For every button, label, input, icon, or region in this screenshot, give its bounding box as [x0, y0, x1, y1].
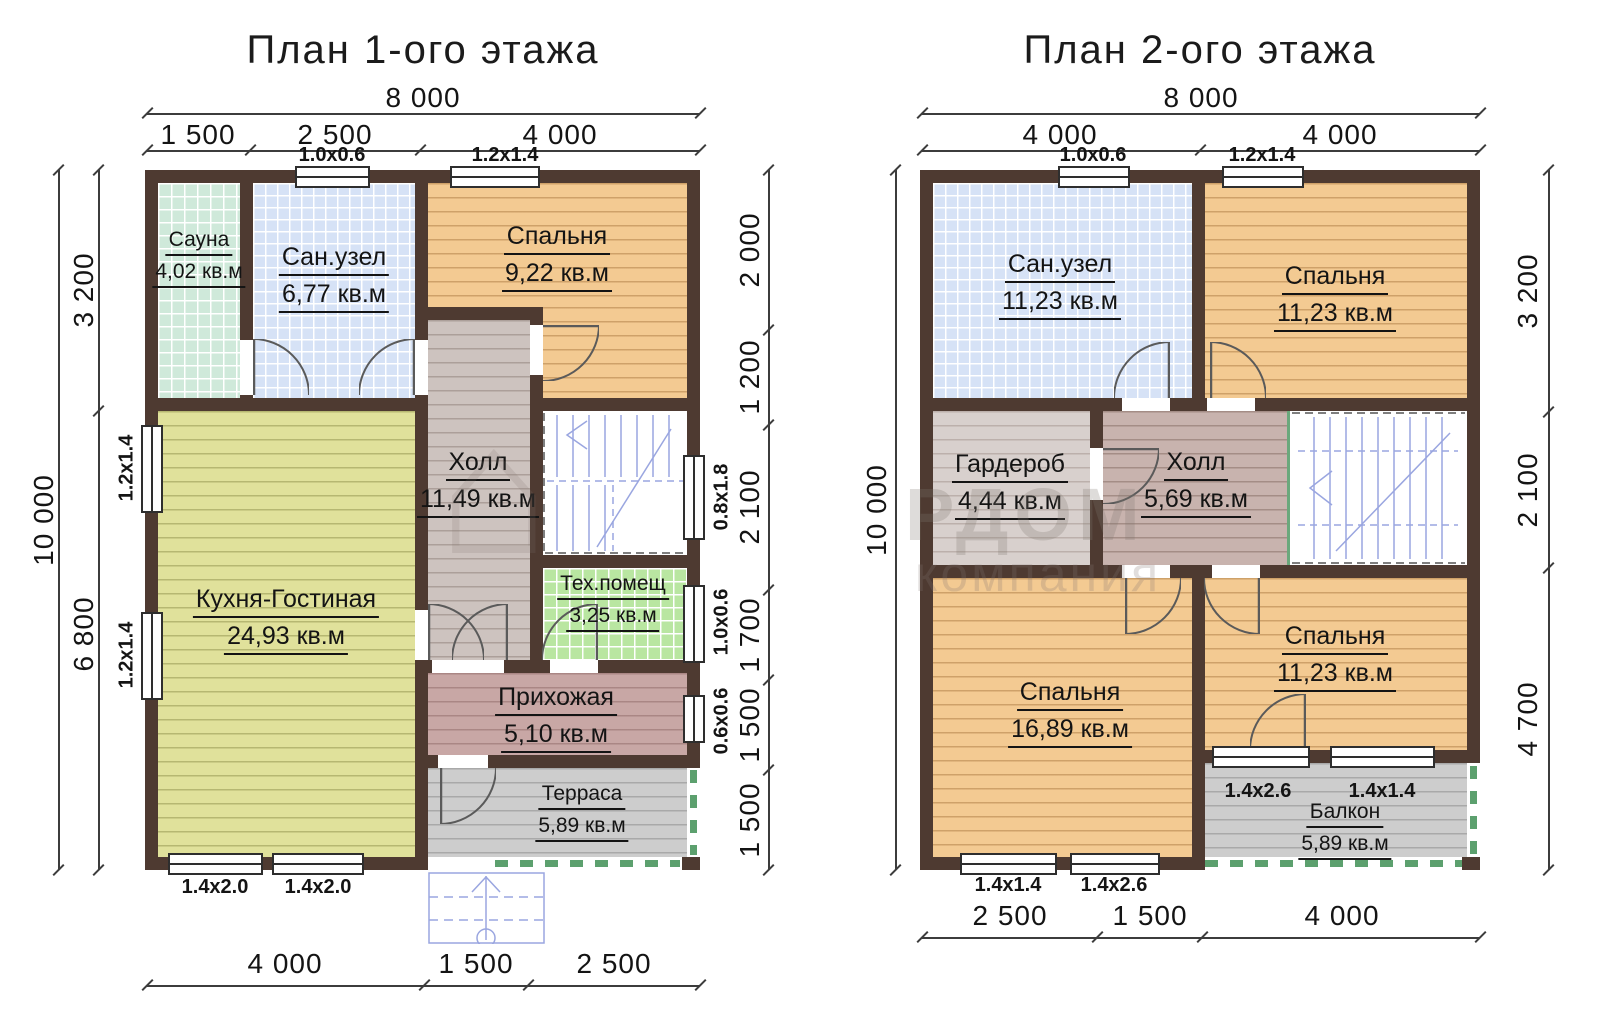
window-size-label: 1.4x2.6	[1081, 874, 1148, 897]
window-size-label: 1.2x1.4	[1229, 144, 1296, 167]
window-size-label: 1.4x2.6	[1225, 780, 1292, 803]
dim-label: 1 700	[734, 597, 766, 672]
window-p1-bottom-1	[168, 853, 263, 875]
plan1-title: План 1-ого этажа	[246, 28, 599, 73]
room-label-bedroom-3: Спальня 16,89 кв.м	[1008, 678, 1132, 748]
dim-label: 2 100	[734, 469, 766, 544]
door-opening-bedroom-2	[1207, 398, 1255, 411]
room-area: 5,69 кв.м	[1141, 485, 1251, 518]
dim-label: 8 000	[385, 82, 460, 114]
room-name: Спальня	[1282, 262, 1388, 295]
room-name: Гардероб	[952, 450, 1068, 483]
room-name: Кухня-Гостиная	[193, 585, 379, 618]
window-size-label: 1.2x1.4	[116, 622, 139, 689]
room-name: Сан.узел	[1005, 250, 1115, 283]
dim-label: 2 500	[972, 900, 1047, 932]
porch-steps	[428, 872, 545, 944]
room-label-bedroom-1: Спальня 9,22 кв.м	[502, 222, 612, 292]
room-name: Холл	[446, 448, 511, 481]
dim-line	[895, 170, 897, 870]
dim-label: 1 500	[734, 687, 766, 762]
room-area: 11,23 кв.м	[1274, 659, 1396, 692]
room-name: Спальня	[1017, 678, 1123, 711]
room-label-wardrobe: Гардероб 4,44 кв.м	[952, 450, 1068, 520]
room-label-bedroom-4: Спальня 11,23 кв.м	[1274, 622, 1396, 692]
window-size-label: 1.0x0.6	[711, 589, 734, 656]
window-p2-top-1	[1058, 166, 1130, 188]
room-label-bathroom-2: Сан.узел 11,23 кв.м	[999, 250, 1121, 320]
room-area: 3,25 кв.м	[566, 604, 659, 632]
dim-label: 6 800	[68, 596, 100, 671]
dim-label: 4 000	[1302, 119, 1377, 151]
door-opening-sauna	[240, 340, 253, 395]
room-name: Сан.узел	[279, 243, 389, 276]
dim-line	[1548, 170, 1550, 870]
door-arc-bedroom-3	[1125, 578, 1181, 634]
dim-label: 8 000	[1163, 82, 1238, 114]
window-p2-balcony-1	[1212, 746, 1310, 768]
dim-label: 1 200	[734, 339, 766, 414]
room-label-bathroom-1: Сан.узел 6,77 кв.м	[279, 243, 389, 313]
room-area: 6,77 кв.м	[279, 280, 389, 313]
window-size-label: 1.2x1.4	[472, 144, 539, 167]
room-area: 11,23 кв.м	[999, 287, 1121, 320]
window-p2-bottom-1	[960, 853, 1057, 875]
room-area: 24,93 кв.м	[224, 622, 348, 655]
window-p2-balcony-2	[1330, 746, 1435, 768]
door-opening-tech	[550, 660, 598, 673]
window-size-label: 0.8x1.8	[711, 464, 734, 531]
door-opening-kitchen	[415, 610, 428, 660]
room-label-balcony: Балкон 5,89 кв.м	[1298, 800, 1391, 860]
room-area: 11,23 кв.м	[1274, 299, 1396, 332]
dim-label: 4 000	[1304, 900, 1379, 932]
dim-label: 2 000	[734, 212, 766, 287]
room-label-sauna: Сауна 4,02 кв.м	[152, 228, 245, 288]
room-label-hall-1: Холл 11,49 кв.м	[417, 448, 539, 518]
window-p1-top-2	[450, 166, 540, 188]
window-p1-left-2	[141, 612, 163, 700]
door-opening-bathroom-2	[1122, 398, 1170, 411]
plan2-title: План 2-ого этажа	[1023, 28, 1376, 73]
room-name: Спальня	[504, 222, 610, 255]
window-p1-right-3	[683, 695, 705, 743]
room-name: Спальня	[1282, 622, 1388, 655]
room-floor-sauna	[158, 183, 240, 398]
window-size-label: 0.6x0.6	[711, 688, 734, 755]
room-name: Сауна	[166, 228, 233, 256]
room-name: Балкон	[1307, 800, 1383, 828]
window-size-label: 1.4x1.4	[1349, 780, 1416, 803]
balcony-railing-bottom	[1205, 860, 1462, 867]
door-arc-terrace	[440, 768, 496, 824]
room-area: 16,89 кв.м	[1008, 715, 1132, 748]
room-area: 9,22 кв.м	[502, 259, 612, 292]
window-size-label: 1.4x2.0	[285, 876, 352, 899]
dim-label: 2 500	[576, 948, 651, 980]
window-p2-top-2	[1222, 166, 1304, 188]
dim-label: 1 500	[1112, 900, 1187, 932]
room-label-terrace: Терраса 5,89 кв.м	[535, 782, 628, 842]
dim-label: 4 700	[1512, 681, 1544, 756]
door-opening-hallway-1	[432, 660, 504, 673]
terrace-railing-bottom	[495, 860, 680, 867]
window-p1-right-1	[683, 455, 705, 540]
terrace-railing-right	[690, 770, 697, 855]
stairs-drawing-1	[543, 411, 687, 555]
room-name: Тех.помещ	[557, 572, 669, 600]
dim-label: 1 500	[160, 119, 235, 151]
window-size-label: 1.0x0.6	[299, 144, 366, 167]
stairs-drawing-2	[1290, 411, 1467, 565]
door-arc-hall-right	[452, 604, 508, 660]
dim-label: 10 000	[861, 464, 893, 556]
door-arc-bathroom-2	[1114, 342, 1170, 398]
window-size-label: 1.4x2.0	[182, 876, 249, 899]
room-area: 11,49 кв.м	[417, 485, 539, 518]
door-opening-bathroom-1	[415, 340, 428, 395]
room-label-bedroom-2: Спальня 11,23 кв.м	[1274, 262, 1396, 332]
door-opening-terrace	[438, 755, 488, 768]
dim-label: 3 200	[68, 252, 100, 327]
window-size-label: 1.0x0.6	[1060, 144, 1127, 167]
door-opening-wardrobe	[1090, 448, 1103, 500]
door-opening-bedroom-4	[1212, 565, 1260, 578]
door-arc-bedroom-1	[543, 325, 599, 381]
dim-label: 10 000	[28, 474, 60, 566]
room-name: Холл	[1164, 448, 1229, 481]
window-size-label: 1.4x1.4	[975, 874, 1042, 897]
window-p1-right-2	[683, 585, 705, 663]
floor-plan-sheet: План 1-ого этажа	[0, 0, 1600, 1020]
dim-label: 4 000	[247, 948, 322, 980]
door-arc-balcony	[1250, 694, 1306, 750]
room-name: Терраса	[539, 782, 626, 810]
door-arc-sauna	[253, 339, 309, 395]
window-size-label: 1.2x1.4	[116, 435, 139, 502]
dim-label: 1 500	[734, 782, 766, 857]
dim-line	[768, 170, 770, 870]
window-p1-bottom-2	[272, 853, 364, 875]
door-opening-bedroom-1	[530, 325, 543, 375]
room-area: 5,10 кв.м	[501, 720, 611, 753]
dim-label: 3 200	[1512, 253, 1544, 328]
room-label-kitchen: Кухня-Гостиная 24,93 кв.м	[193, 585, 379, 655]
room-label-tech: Тех.помещ 3,25 кв.м	[557, 572, 669, 632]
door-arc-bedroom-4	[1204, 578, 1260, 634]
window-p2-bottom-2	[1070, 853, 1160, 875]
door-arc-bathroom-1	[359, 339, 415, 395]
door-arc-bedroom-2	[1210, 342, 1266, 398]
dim-label: 2 100	[1512, 452, 1544, 527]
room-area: 5,89 кв.м	[1298, 832, 1391, 860]
window-p1-top-1	[295, 166, 370, 188]
door-opening-bedroom-3	[1122, 565, 1170, 578]
room-area: 5,89 кв.м	[535, 814, 628, 842]
room-name: Прихожая	[495, 683, 617, 716]
room-label-hall-2: Холл 5,69 кв.м	[1141, 448, 1251, 518]
dim-label: 1 500	[438, 948, 513, 980]
room-label-hallway: Прихожая 5,10 кв.м	[495, 683, 617, 753]
window-p1-left-1	[141, 425, 163, 513]
balcony-railing-right	[1470, 766, 1477, 854]
room-area: 4,44 кв.м	[955, 487, 1065, 520]
room-area: 4,02 кв.м	[152, 260, 245, 288]
